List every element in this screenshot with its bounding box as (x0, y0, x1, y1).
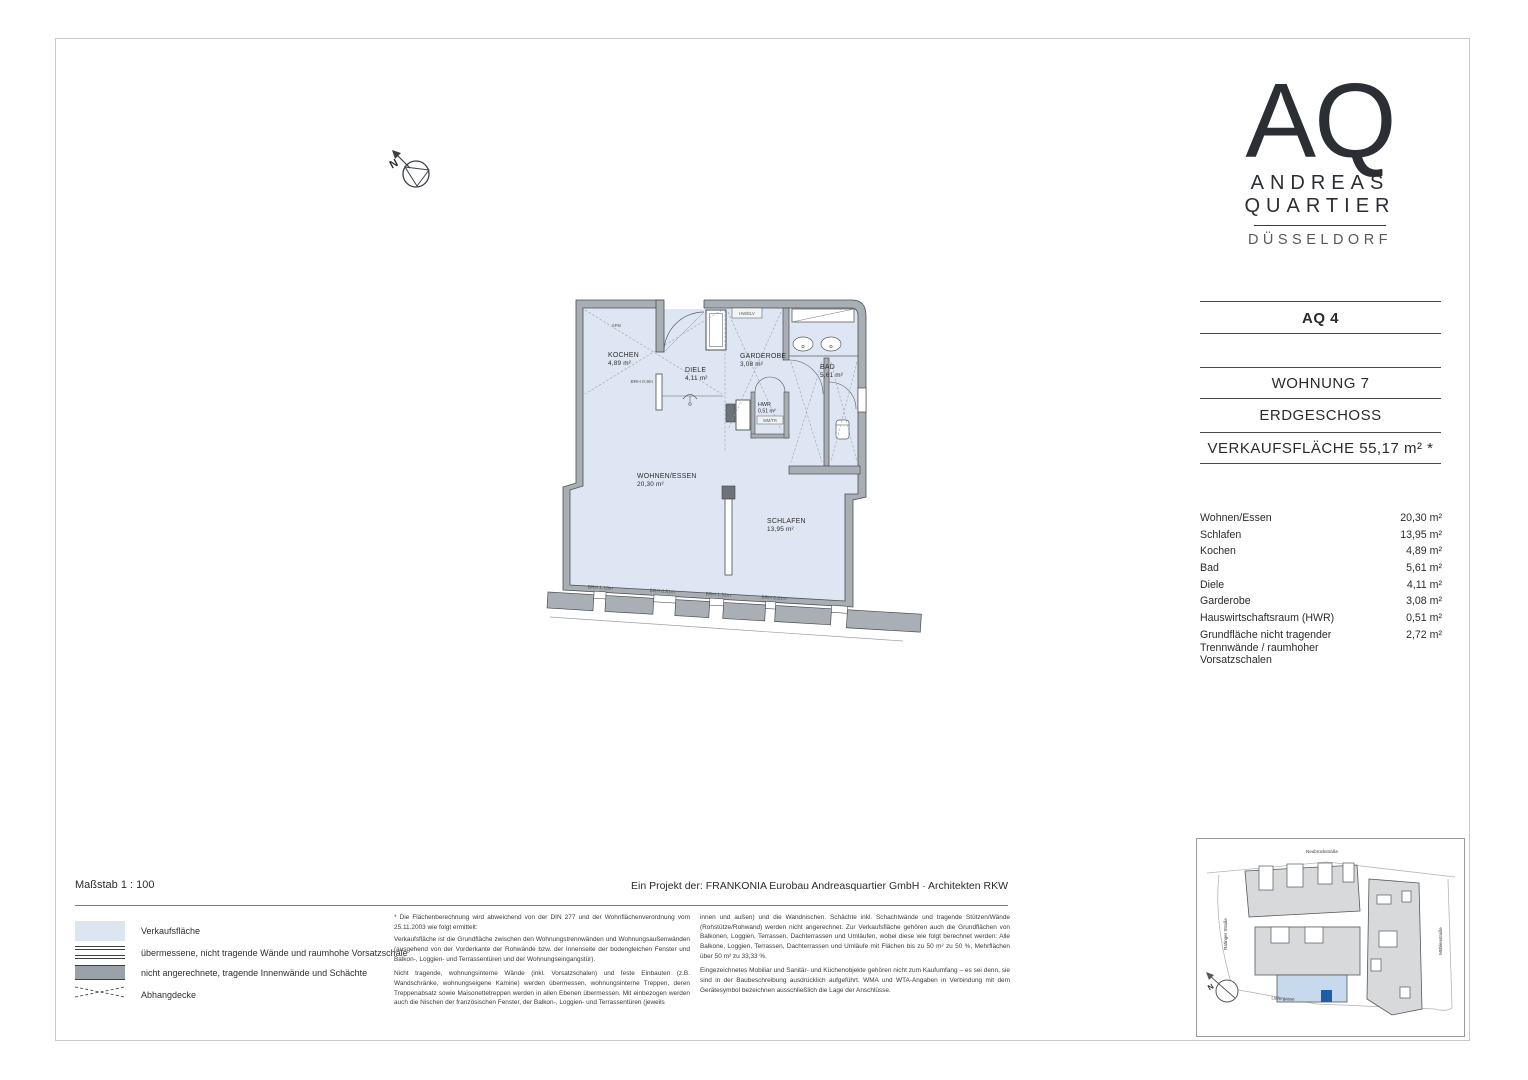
map-north-label: N (1206, 982, 1215, 993)
table-row: Kochen 4,89 m² (1200, 545, 1442, 562)
street-label-bottom: Liefergasse (1271, 995, 1295, 1001)
room-label: WOHNEN/ESSEN (637, 473, 697, 480)
room-area: 13,95 m² (767, 526, 794, 533)
shaft-box (706, 310, 726, 350)
logo-name-line1: ANDREAS (1200, 172, 1440, 195)
street-label-right: Mühlenstraße (1438, 927, 1443, 955)
spm-label: SPM (612, 323, 621, 328)
floor-title: ERDGESCHOSS (1200, 407, 1441, 424)
kitchen-parapet (656, 374, 662, 410)
room-area-table: Wohnen/Essen 20,30 m² Schlafen 13,95 m² … (1200, 512, 1442, 667)
legend-swatch-bearing-walls (75, 965, 125, 980)
toilet-icon (836, 420, 849, 439)
hw-elv-label: HW/ELV (739, 311, 755, 316)
title-rule (1200, 398, 1441, 399)
room-label: SCHLAFEN (767, 518, 806, 525)
footer-rule (75, 905, 1008, 906)
north-label: N (388, 157, 400, 171)
footnote-column-1: * Die Flächenberechnung wird abweichend … (394, 913, 690, 1013)
room-label: BAD (820, 364, 835, 371)
table-row: Wohnen/Essen 20,30 m² (1200, 512, 1442, 529)
hwr-wall-right (784, 392, 789, 438)
bath-bottom-wall (789, 466, 860, 474)
room-area: 20,30 m² (637, 481, 664, 488)
kitchen-brh-label: BRH 0.9m (630, 379, 653, 385)
legend-swatch-suspended-ceiling (75, 984, 125, 1005)
logo-monogram: AQ (1200, 78, 1440, 165)
room-area: 0,51 m² (758, 409, 776, 415)
title-rule (1200, 367, 1441, 368)
room-label: GARDEROBE (740, 353, 786, 360)
title-rule (1200, 463, 1441, 464)
room-label: DIELE (685, 367, 706, 374)
entry-doorway (663, 298, 704, 309)
room-label: KOCHEN (608, 352, 639, 359)
hwr-wall-bottom (751, 434, 789, 438)
title-rule (1200, 432, 1441, 433)
table-row: Schlafen 13,95 m² (1200, 529, 1442, 546)
table-row: Diele 4,11 m² (1200, 579, 1442, 596)
column (726, 404, 735, 422)
room-area: 3,08 m² (740, 361, 763, 368)
floor-plan: HW/ELV (540, 290, 930, 660)
legend-swatch-nonbearing-walls (75, 946, 125, 959)
logo-city: DÜSSELDORF (1200, 232, 1440, 248)
sink-icon (793, 337, 813, 351)
room-area: 4,89 m² (608, 360, 631, 367)
unit-location-marker (1321, 990, 1332, 1002)
legend-swatch-sales-area (75, 921, 125, 941)
scale-label: Maßstab 1 : 100 (75, 879, 155, 891)
table-row: Bad 5,61 m² (1200, 562, 1442, 579)
room-area: 5,61 m² (820, 372, 843, 379)
street-label-left: Ratinger Straße (1223, 918, 1228, 950)
footnote-column-2: innen und außen) und die Wandnischen. Sc… (700, 913, 1010, 1000)
logo-rule (1254, 225, 1386, 226)
unit-title: WOHNUNG 7 (1200, 375, 1441, 392)
title-rule (1200, 301, 1441, 302)
sink-icon (821, 337, 841, 351)
hwr-wall-left (751, 392, 755, 438)
column (722, 486, 735, 499)
kitchen-stub-wall (656, 300, 664, 352)
duct-box (736, 400, 750, 430)
washer-label: WM/TR (763, 418, 777, 423)
room-area: 4,11 m² (685, 375, 708, 382)
street-label-top: Neubrückstraße (1306, 849, 1339, 854)
table-row: Garderobe 3,08 m² (1200, 595, 1442, 612)
logo: AQ ANDREAS QUARTIER DÜSSELDORF (1200, 78, 1440, 248)
freestanding-wall (725, 499, 732, 575)
table-row: Hauswirtschaftsraum (HWR) 0,51 m² (1200, 612, 1442, 629)
title-rule (1200, 333, 1441, 334)
map-north-compass: N (1206, 972, 1238, 1002)
room-label: HWR (758, 402, 771, 408)
sales-area-title: VERKAUFSFLÄCHE 55,17 m² * (1200, 440, 1441, 457)
table-row: Grundfläche nicht tragender Trennwände /… (1200, 629, 1442, 667)
site-map: Neubrückstraße Ratinger Straße Mühlenstr… (1196, 838, 1465, 1037)
logo-name-line2: QUARTIER (1200, 195, 1440, 218)
building-title: AQ 4 (1200, 310, 1441, 327)
north-compass: N (388, 146, 442, 196)
project-credit: Ein Projekt der: FRANKONIA Eurobau Andre… (400, 880, 1008, 892)
wall-niche (858, 388, 866, 412)
